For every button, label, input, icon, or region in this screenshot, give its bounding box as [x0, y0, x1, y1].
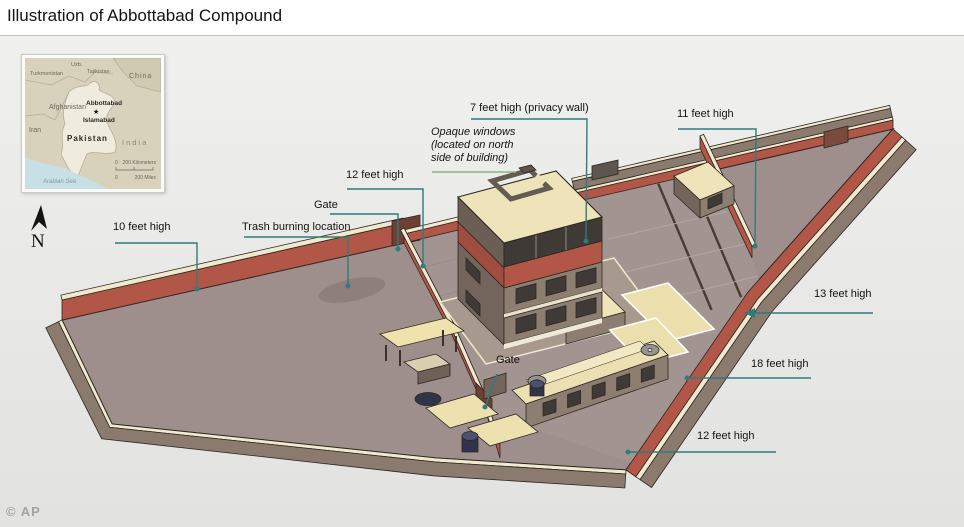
callout-18-feet-high: 18 feet high [751, 358, 809, 371]
leader-dot [195, 287, 200, 292]
map-scale-mi: 200 Miles [135, 175, 157, 181]
barrel-top [462, 432, 478, 441]
map-label-iran: Iran [29, 127, 41, 134]
north-arrow-icon [31, 205, 47, 231]
infographic: Illustration of Abbottabad Compound Turk… [0, 0, 964, 527]
locator-map: Turkmenistan Uzb. Tajikistan China Afgha… [21, 54, 165, 193]
map-label-india: India [122, 138, 148, 147]
leader-dot [626, 450, 631, 455]
map-label-uzbekistan: Uzb. [71, 62, 83, 68]
satellite-dish-center [648, 349, 652, 352]
leader-dot [421, 264, 426, 269]
compass-label: N [31, 231, 45, 253]
barrel-lying [415, 393, 441, 406]
map-scale-zero-km: 0 [115, 160, 118, 166]
leader-dot [685, 376, 690, 381]
map-label-afghanistan: Afghanistan [49, 104, 86, 111]
leader-dot [483, 405, 488, 410]
callout-12-feet-high-south: 12 feet high [697, 430, 755, 443]
callout-11-feet-high: 11 feet high [677, 108, 734, 121]
map-label-arabian-sea: Arabian Sea [42, 179, 77, 185]
callout-gate-north: Gate [314, 199, 338, 212]
locator-map-svg: Turkmenistan Uzb. Tajikistan China Afgha… [25, 58, 161, 189]
callout-13-feet-high: 13 feet high [814, 288, 872, 301]
map-label-turkmenistan: Turkmenistan [30, 71, 63, 77]
title-bar: Illustration of Abbottabad Compound [0, 0, 964, 35]
callout-10-feet-high: 10 feet high [113, 221, 171, 234]
map-label-abbottabad: Abbottabad [86, 100, 122, 107]
map-scale-km: 200 Kilometers [123, 160, 157, 166]
map-label-china: China [129, 73, 152, 80]
callout-7-feet-privacy-wall: 7 feet high (privacy wall) [470, 102, 589, 115]
map-city-marker-icon: ★ [93, 108, 99, 116]
leader-dot [396, 247, 401, 252]
map-label-pakistan: Pakistan [67, 134, 108, 143]
callout-12-feet-high-north: 12 feet high [346, 169, 404, 182]
callout-gate-south: Gate [496, 354, 520, 367]
leader-dot [346, 284, 351, 289]
map-label-tajikistan: Tajikistan [87, 69, 110, 75]
callout-trash-burning-location: Trash burning location [242, 221, 350, 234]
ap-credit: © AP [6, 504, 41, 519]
callout-opaque-windows: Opaque windows (located on north side of… [431, 126, 515, 166]
barrel-top [530, 380, 544, 388]
leader-dot [584, 239, 589, 244]
leader-dot [753, 244, 758, 249]
map-label-islamabad: Islamabad [83, 117, 115, 124]
page-title: Illustration of Abbottabad Compound [7, 6, 282, 26]
map-scale-zero-mi: 0 [115, 175, 118, 181]
